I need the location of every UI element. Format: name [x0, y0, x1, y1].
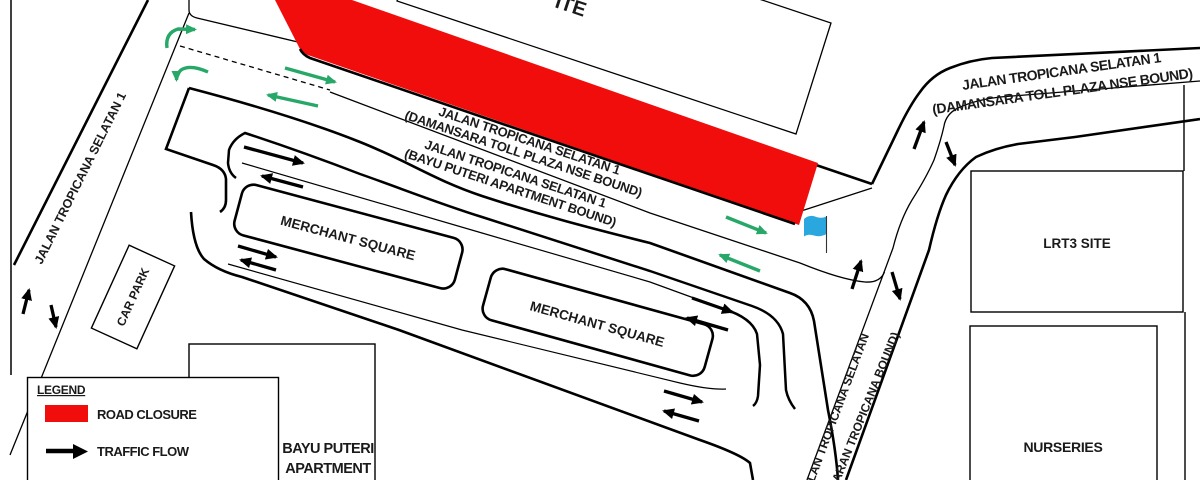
svg-text:LEGEND: LEGEND	[37, 383, 86, 397]
svg-text:ROAD CLOSURE: ROAD CLOSURE	[97, 407, 197, 422]
svg-text:NURSERIES: NURSERIES	[1024, 439, 1103, 455]
svg-text:APARTMENT: APARTMENT	[285, 461, 371, 477]
svg-text:LRT3 SITE: LRT3 SITE	[1043, 236, 1111, 251]
svg-text:TRAFFIC FLOW: TRAFFIC FLOW	[97, 444, 190, 459]
svg-text:BAYU PUTERI: BAYU PUTERI	[282, 441, 374, 457]
